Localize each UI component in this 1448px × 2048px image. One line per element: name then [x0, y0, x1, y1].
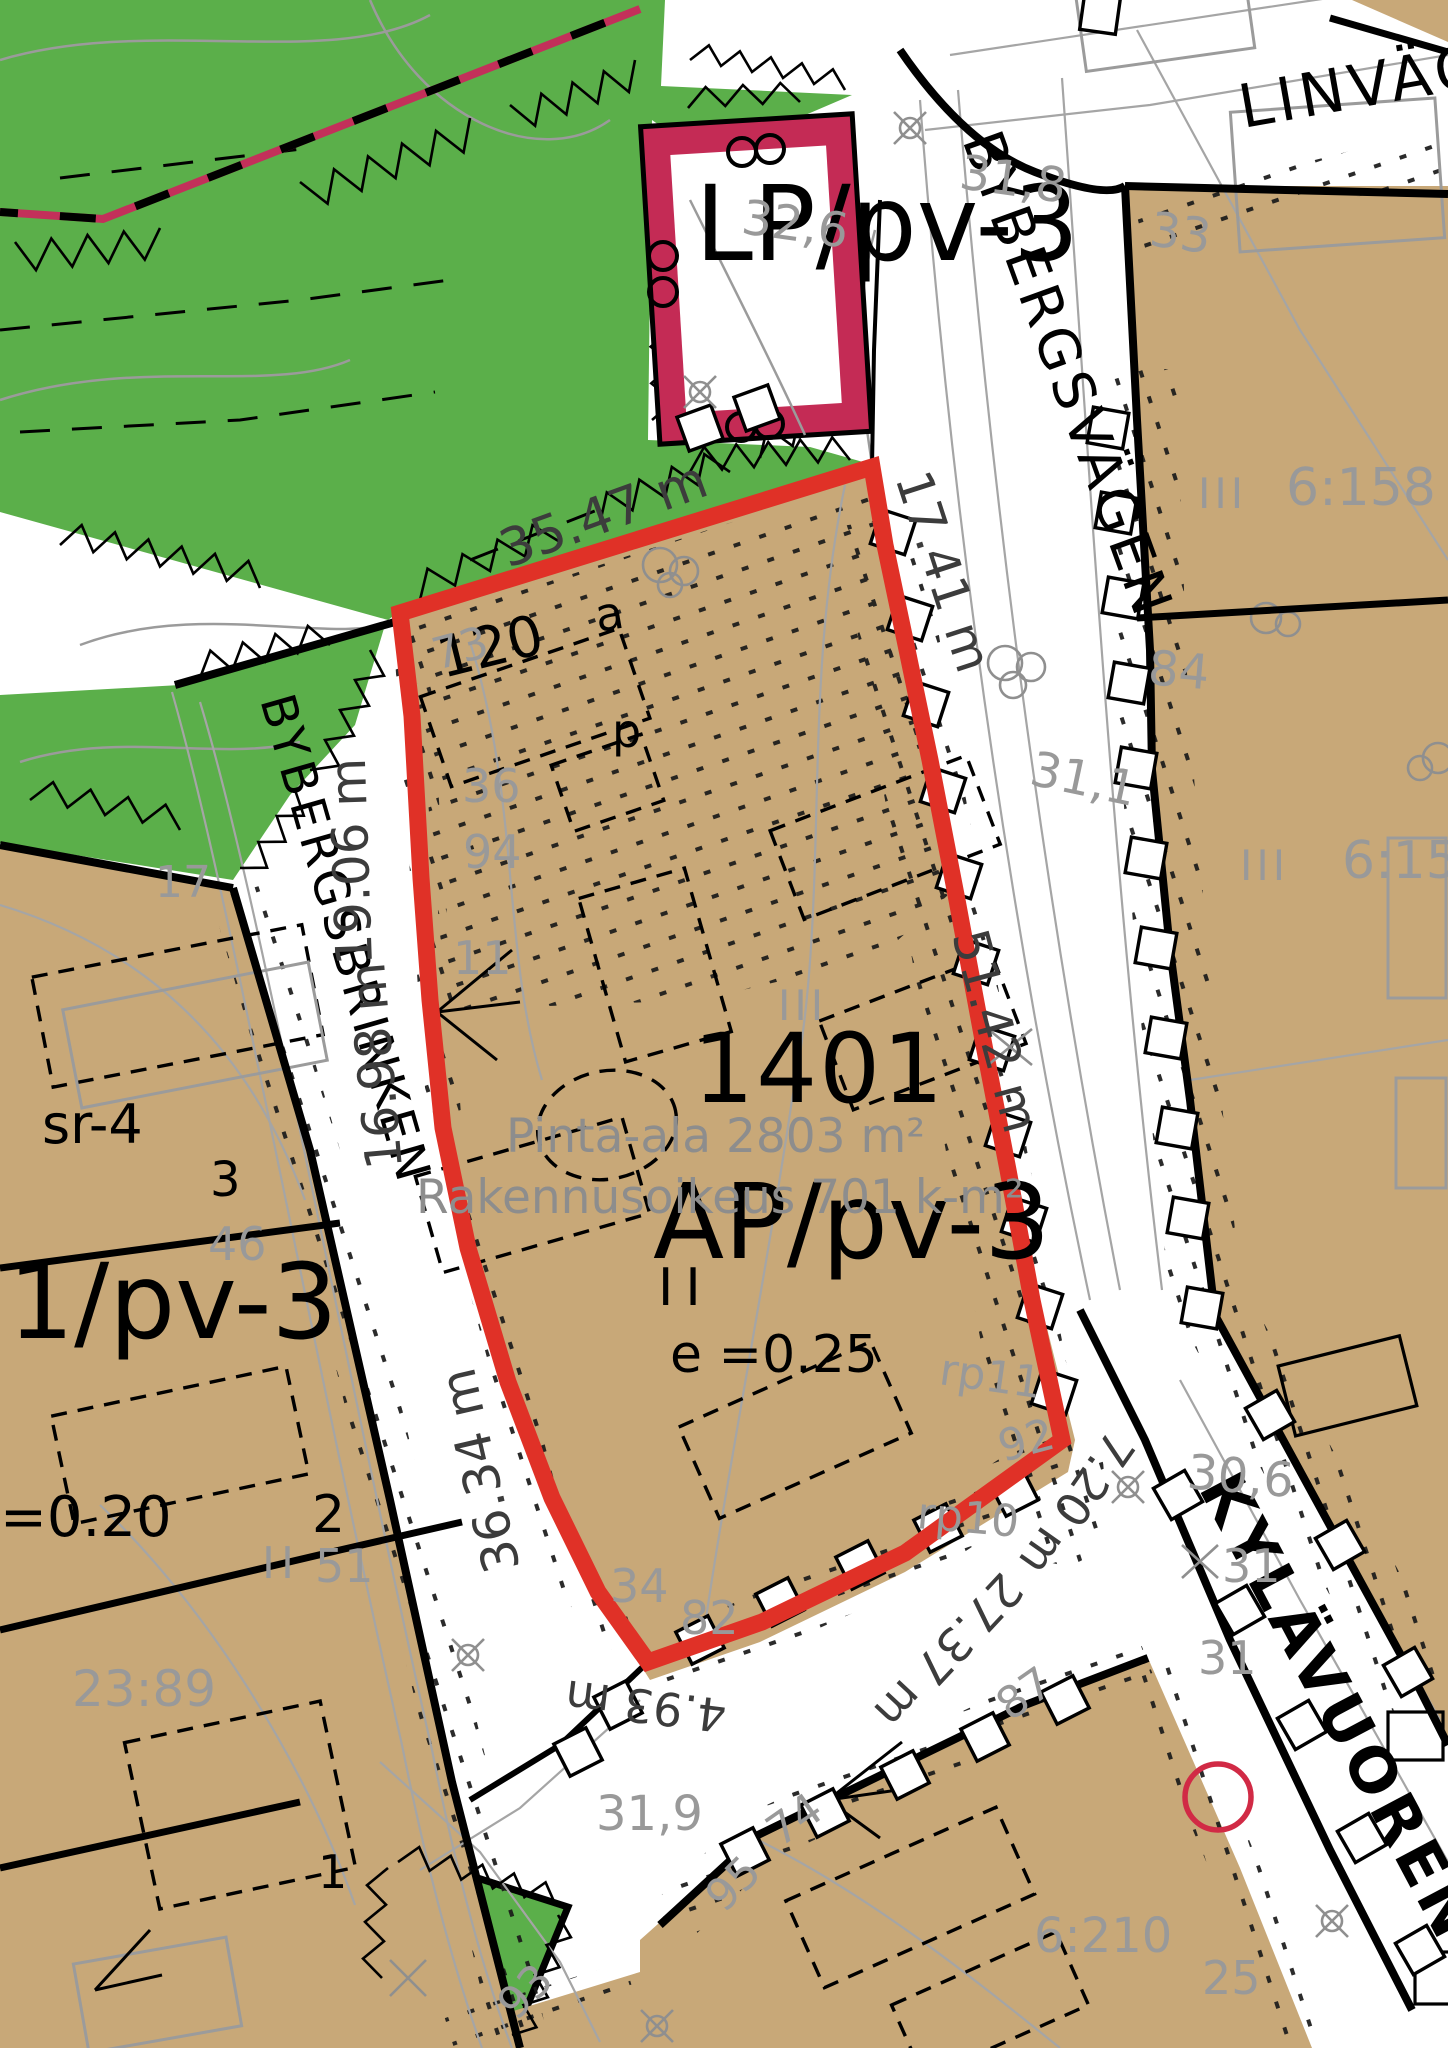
num-306: 30,6	[1185, 1444, 1296, 1509]
label-building-right: Rakennusoikeus 701 k-m²	[416, 1170, 1024, 1225]
num-84: 84	[1146, 640, 1212, 701]
zoning-map-canvas: LP/pv-3 AP/pv-3 1/pv-3 sr-4 e =0.25 =0.2…	[0, 0, 1448, 2048]
label-e025: e =0.25	[670, 1325, 878, 1385]
label-area: Pinta-ala 2803 m²	[506, 1109, 925, 1164]
label-1pv-zone: 1/pv-3	[8, 1241, 338, 1363]
num-94: 94	[463, 825, 522, 879]
num-iii-a: III	[1198, 469, 1247, 518]
num-6157: 6:157	[1342, 831, 1448, 891]
num-iii-b: III	[778, 981, 827, 1030]
num-319: 31,9	[596, 1786, 703, 1842]
label-storeys-ii: II	[658, 1258, 713, 1318]
num-17: 17	[155, 857, 211, 908]
num-31b: 31	[1198, 1631, 1257, 1685]
label-n2: 2	[312, 1485, 345, 1545]
num-51: 51	[315, 1539, 374, 1593]
num-36: 36	[462, 759, 521, 813]
num-33: 33	[1146, 201, 1214, 265]
label-n3: 3	[210, 1152, 241, 1208]
num-ii-gray: II	[262, 1538, 300, 1589]
label-n1: 1	[318, 1845, 347, 1899]
num-rp10: rp10	[915, 1488, 1021, 1548]
map-svg: LP/pv-3 AP/pv-3 1/pv-3 sr-4 e =0.25 =0.2…	[0, 0, 1448, 2048]
num-6210: 6:210	[1034, 1908, 1172, 1964]
num-34: 34	[610, 1559, 669, 1613]
num-6158: 6:158	[1286, 458, 1436, 518]
label-e020: =0.20	[0, 1485, 172, 1550]
label-mark-p: p	[612, 704, 641, 758]
num-25: 25	[1202, 1951, 1261, 2005]
measure-1906: 19.06 m	[319, 757, 384, 967]
num-iii-c: III	[1240, 841, 1289, 890]
label-sr4: sr-4	[42, 1093, 143, 1156]
num-46: 46	[208, 1217, 267, 1271]
num-31a: 31	[1222, 1539, 1281, 1593]
num-82: 82	[680, 1591, 739, 1645]
num-2389: 23:89	[72, 1660, 216, 1718]
num-11: 11	[453, 931, 512, 985]
